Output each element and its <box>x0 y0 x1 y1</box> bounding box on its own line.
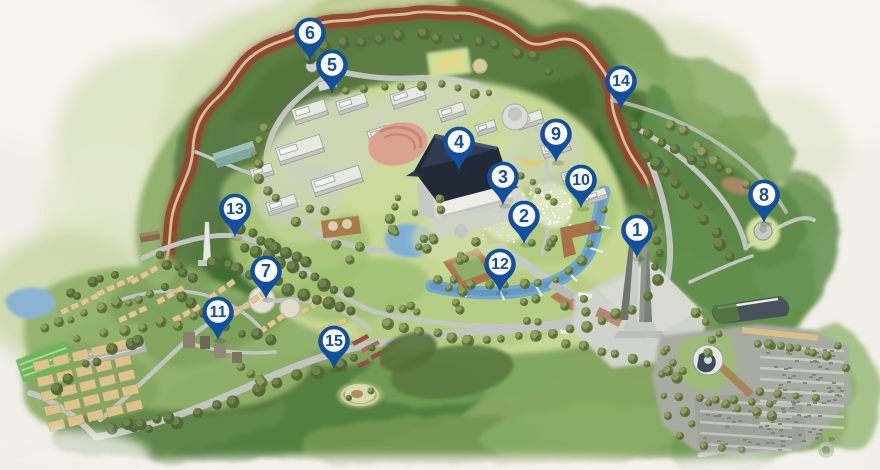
svg-text:9: 9 <box>551 124 561 144</box>
svg-text:12: 12 <box>491 256 509 273</box>
svg-text:14: 14 <box>612 73 630 90</box>
svg-text:6: 6 <box>305 23 315 43</box>
svg-text:13: 13 <box>226 201 244 218</box>
svg-text:2: 2 <box>519 206 529 226</box>
svg-text:1: 1 <box>632 220 642 240</box>
svg-text:4: 4 <box>454 132 464 152</box>
svg-text:3: 3 <box>498 167 508 187</box>
svg-text:15: 15 <box>325 333 343 350</box>
svg-text:11: 11 <box>210 304 227 321</box>
svg-text:7: 7 <box>261 261 271 281</box>
svg-text:8: 8 <box>759 185 769 205</box>
svg-text:5: 5 <box>327 55 337 75</box>
svg-text:10: 10 <box>572 172 590 189</box>
